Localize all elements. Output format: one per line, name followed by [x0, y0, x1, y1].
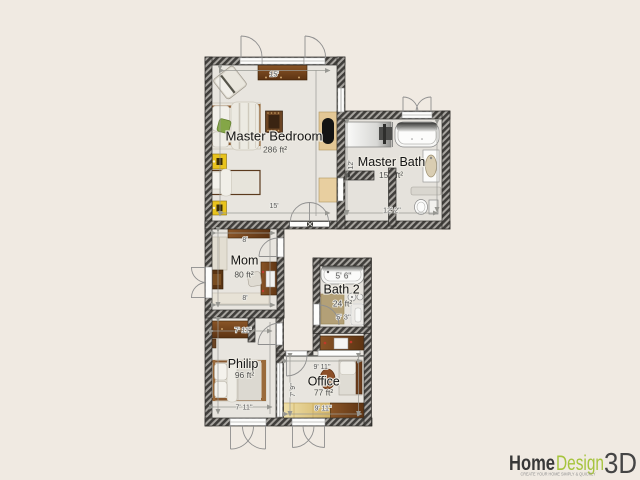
svg-text:5' 6'': 5' 6'' — [336, 272, 352, 281]
svg-text:15': 15' — [269, 72, 278, 79]
svg-text:9' 11'': 9' 11'' — [313, 364, 330, 371]
svg-text:286 ft²: 286 ft² — [263, 145, 287, 155]
svg-text:12': 12' — [348, 160, 355, 169]
svg-text:9' 11'': 9' 11'' — [314, 406, 331, 413]
svg-text:7' 9'': 7' 9'' — [290, 383, 297, 397]
svg-text:Mom: Mom — [231, 254, 259, 268]
svg-text:7' 11'': 7' 11'' — [234, 328, 251, 335]
svg-text:Office: Office — [308, 375, 340, 389]
svg-text:12' 2'': 12' 2'' — [383, 208, 401, 215]
svg-text:CREATE YOUR HOME SIMPLY & QUIC: CREATE YOUR HOME SIMPLY & QUICKLY — [521, 472, 596, 477]
svg-text:80 ft²: 80 ft² — [234, 270, 254, 280]
svg-text:8': 8' — [242, 295, 247, 302]
svg-text:24 ft²: 24 ft² — [333, 299, 353, 309]
svg-text:3D: 3D — [604, 448, 637, 480]
svg-text:8': 8' — [242, 237, 247, 244]
svg-text:15': 15' — [269, 203, 278, 210]
svg-text:Master Bedroom: Master Bedroom — [226, 130, 323, 144]
svg-text:77 ft²: 77 ft² — [314, 388, 334, 398]
svg-text:96 ft²: 96 ft² — [235, 370, 255, 380]
svg-text:Master Bath: Master Bath — [358, 155, 425, 169]
svg-text:Bath 2: Bath 2 — [324, 283, 360, 297]
svg-text:Philip: Philip — [228, 357, 259, 371]
svg-text:7' 11'': 7' 11'' — [235, 405, 252, 412]
